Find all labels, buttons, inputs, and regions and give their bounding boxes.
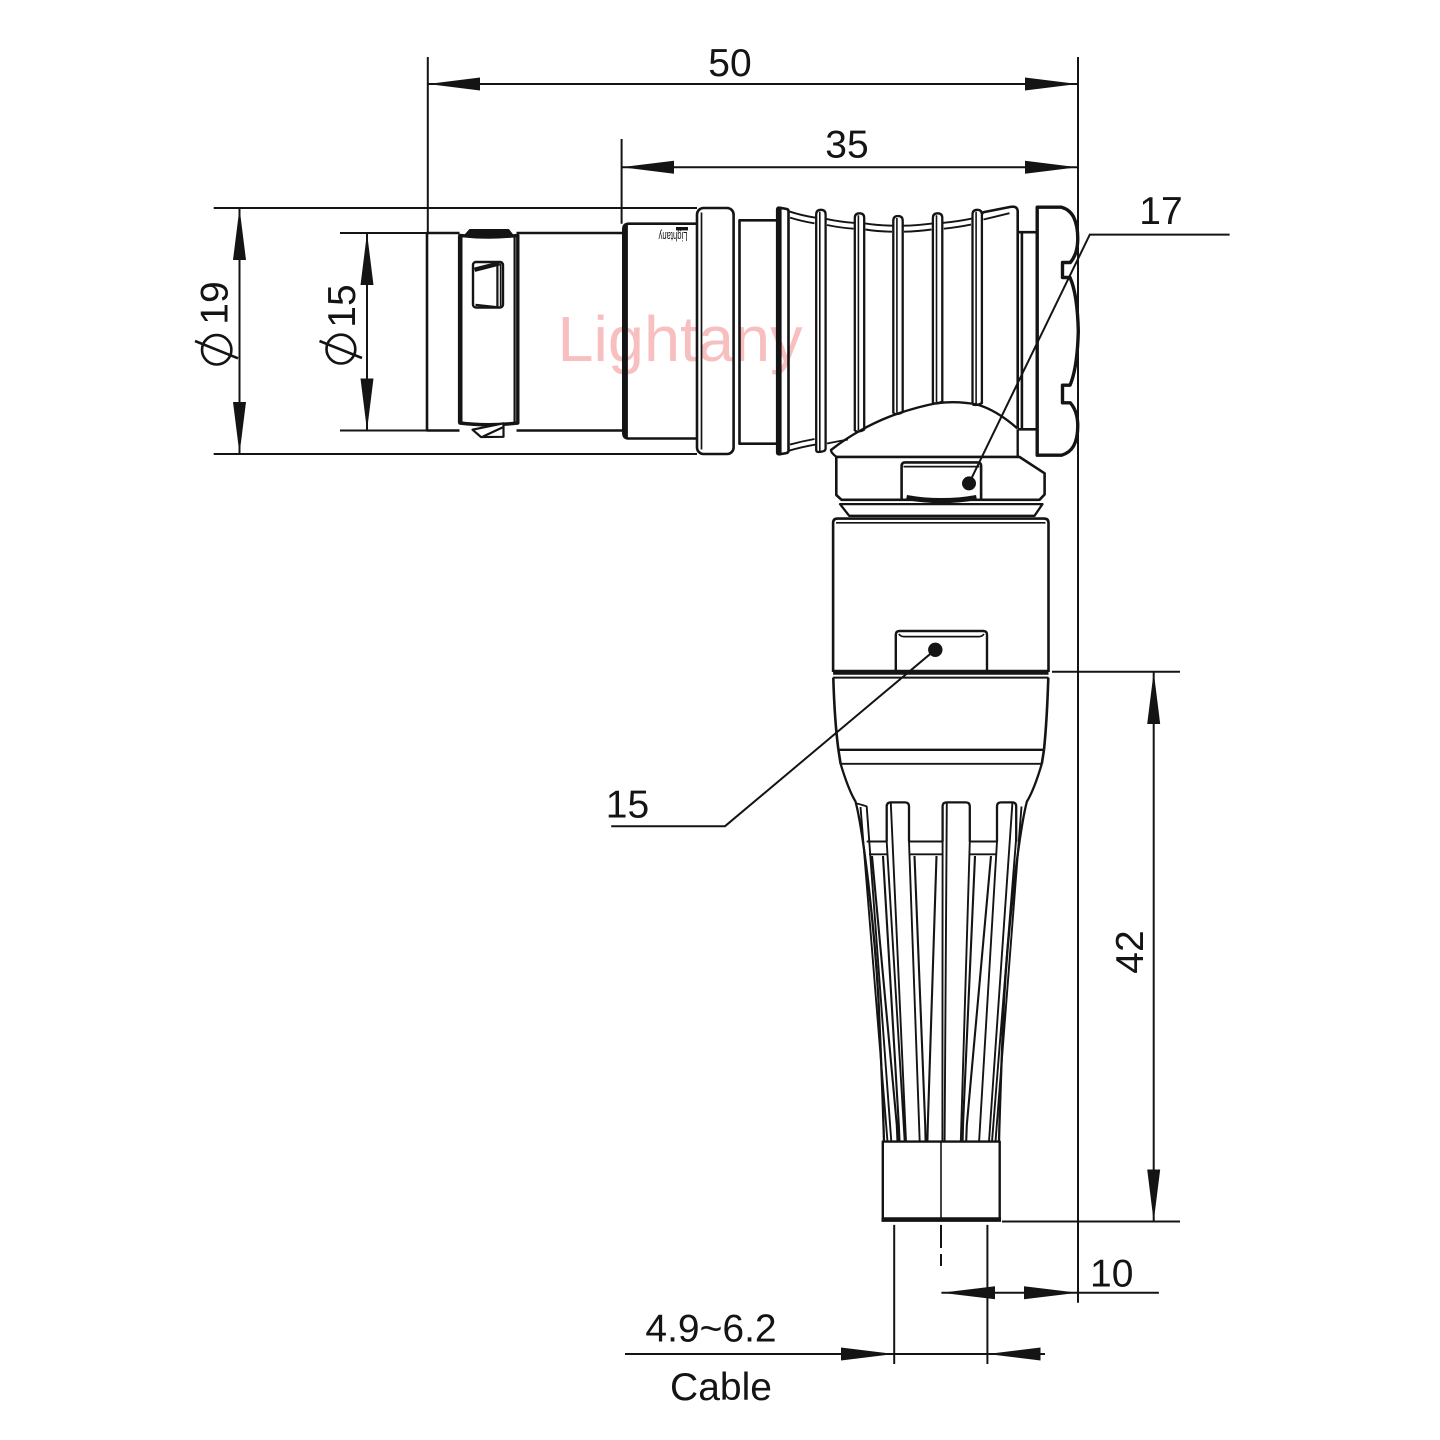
svg-text:Lightany: Lightany	[558, 303, 803, 375]
svg-text:17: 17	[1139, 190, 1182, 233]
svg-text:Lightany: Lightany	[658, 229, 687, 243]
svg-text:35: 35	[825, 124, 868, 167]
svg-text:42: 42	[1109, 930, 1152, 973]
svg-text:19: 19	[194, 281, 237, 324]
svg-text:15: 15	[321, 284, 364, 327]
svg-text:4.9~6.2: 4.9~6.2	[645, 1308, 776, 1351]
svg-text:15: 15	[606, 784, 649, 827]
svg-text:10: 10	[1090, 1253, 1133, 1296]
svg-text:Cable: Cable	[670, 1366, 772, 1409]
svg-text:50: 50	[708, 42, 751, 85]
